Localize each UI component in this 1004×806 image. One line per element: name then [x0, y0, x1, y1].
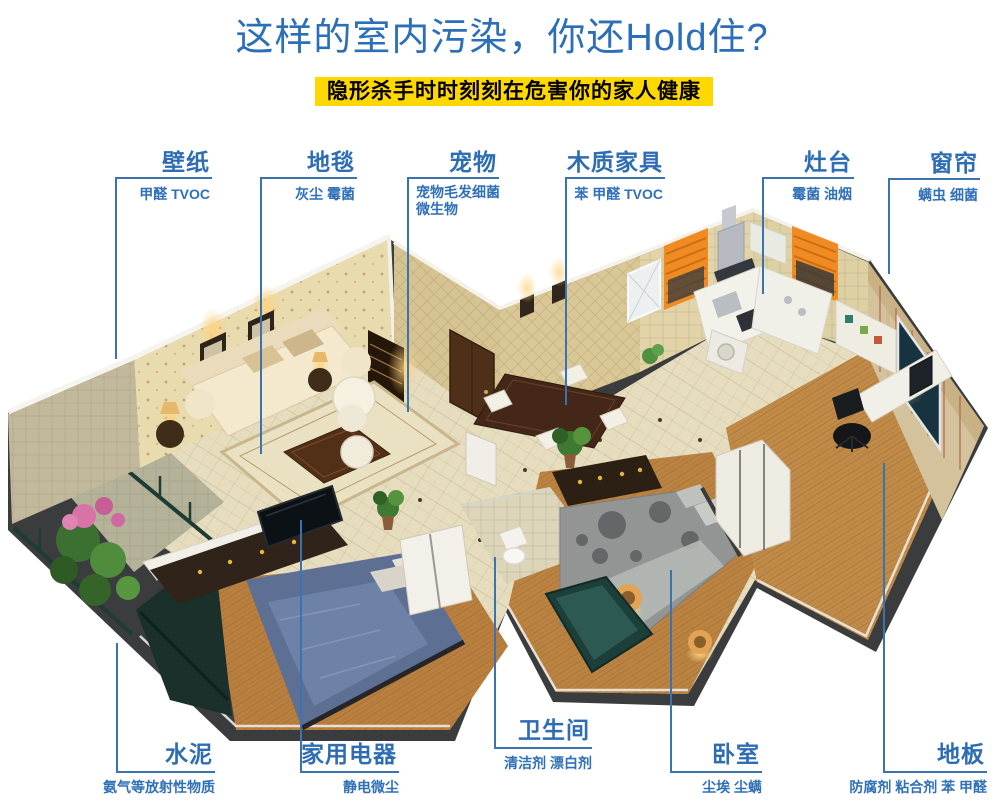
- callout-pollutants: 清洁剂 漂白剂: [504, 753, 592, 773]
- callout-pollutants: 氨气等放射性物质: [103, 777, 215, 797]
- callout-label: 窗帘: [930, 144, 978, 178]
- callout-pollutants: 静电微尘: [343, 777, 399, 797]
- callout-pollutants: 防腐剂 粘合剂 苯 甲醛: [849, 777, 987, 797]
- callout-label: 地毯: [307, 143, 355, 177]
- callout-pollutants: 尘埃 尘螨: [702, 777, 762, 797]
- callout-label: 水泥: [165, 735, 213, 769]
- callout-label: 家用电器: [301, 735, 397, 769]
- callout-label: 地板: [937, 735, 985, 769]
- callout-cement: 水泥 氨气等放射性物质: [116, 643, 215, 773]
- callout-curtain: 窗帘 螨虫 细菌: [888, 178, 980, 274]
- infographic-poster: 这样的室内污染，你还Hold住? 隐形杀手时时刻刻在危害你的家人健康 壁纸 甲醛…: [0, 0, 1004, 806]
- callout-pollutants: 宠物毛发细菌 微生物: [416, 184, 504, 218]
- callout-pet: 宠物 宠物毛发细菌 微生物: [407, 177, 499, 412]
- callout-label: 木质家具: [567, 143, 663, 177]
- callout-carpet: 地毯 灰尘 霉菌: [260, 177, 357, 454]
- callout-label: 卧室: [712, 735, 760, 769]
- callout-pollutants: 螨虫 细菌: [918, 185, 978, 205]
- callout-label: 宠物: [449, 143, 497, 177]
- callout-bathroom: 卫生间 清洁剂 漂白剂: [494, 557, 592, 749]
- callout-pollutants: 苯 甲醛 TVOC: [574, 184, 663, 204]
- callout-pollutants: 甲醛 TVOC: [139, 184, 210, 204]
- callout-label: 壁纸: [162, 143, 210, 177]
- callout-floor: 地板 防腐剂 粘合剂 苯 甲醛: [883, 463, 987, 773]
- callout-pollutants: 霉菌 油烟: [792, 184, 852, 204]
- callout-label: 卫生间: [518, 711, 590, 745]
- page-title: 这样的室内污染，你还Hold住?: [0, 6, 1004, 61]
- callout-wallpaper: 壁纸 甲醛 TVOC: [115, 177, 212, 359]
- subtitle-banner: 隐形杀手时时刻刻在危害你的家人健康: [315, 77, 713, 106]
- callout-pollutants: 灰尘 霉菌: [295, 184, 355, 204]
- callout-wood-furniture: 木质家具 苯 甲醛 TVOC: [565, 177, 665, 405]
- callout-appliance: 家用电器 静电微尘: [300, 520, 399, 773]
- callout-bedroom: 卧室 尘埃 尘螨: [670, 570, 762, 773]
- callout-label: 灶台: [804, 143, 852, 177]
- callout-stove: 灶台 霉菌 油烟: [762, 177, 854, 294]
